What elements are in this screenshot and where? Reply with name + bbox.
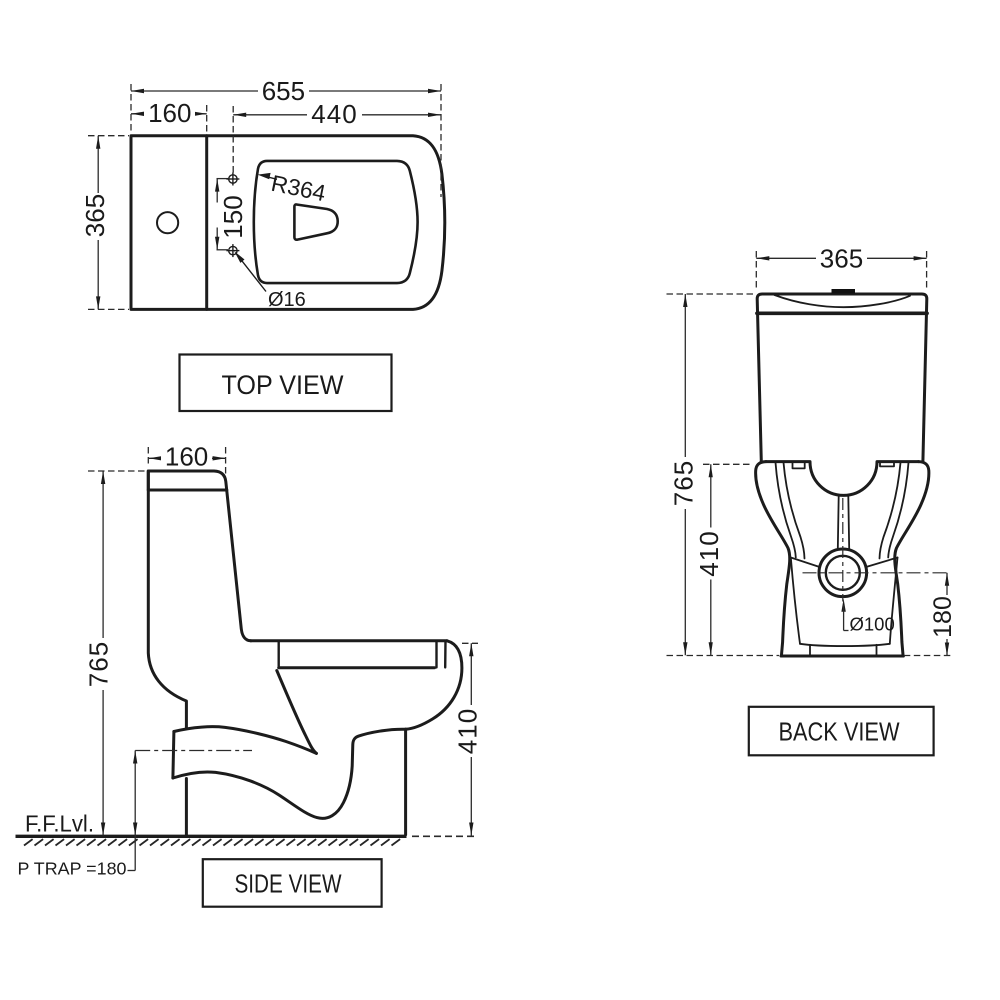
svg-text:410: 410 bbox=[694, 530, 724, 576]
svg-text:180: 180 bbox=[929, 596, 957, 638]
svg-text:TOP VIEW: TOP VIEW bbox=[222, 370, 344, 400]
svg-text:655: 655 bbox=[262, 76, 305, 106]
svg-text:410: 410 bbox=[453, 708, 483, 754]
svg-text:Ø100: Ø100 bbox=[850, 614, 895, 635]
svg-text:440: 440 bbox=[311, 99, 357, 129]
svg-text:P TRAP =180: P TRAP =180 bbox=[18, 859, 127, 879]
svg-text:365: 365 bbox=[820, 244, 863, 274]
svg-text:765: 765 bbox=[84, 641, 114, 687]
svg-text:160: 160 bbox=[148, 98, 191, 128]
svg-text:765: 765 bbox=[669, 460, 699, 506]
svg-text:160: 160 bbox=[165, 441, 208, 471]
svg-text:365: 365 bbox=[80, 194, 110, 237]
svg-text:SIDE VIEW: SIDE VIEW bbox=[235, 871, 342, 899]
svg-text:BACK VIEW: BACK VIEW bbox=[779, 719, 900, 747]
svg-text:F.F.Lvl.: F.F.Lvl. bbox=[25, 811, 94, 837]
svg-text:Ø16: Ø16 bbox=[268, 289, 306, 311]
svg-text:150: 150 bbox=[218, 195, 248, 238]
